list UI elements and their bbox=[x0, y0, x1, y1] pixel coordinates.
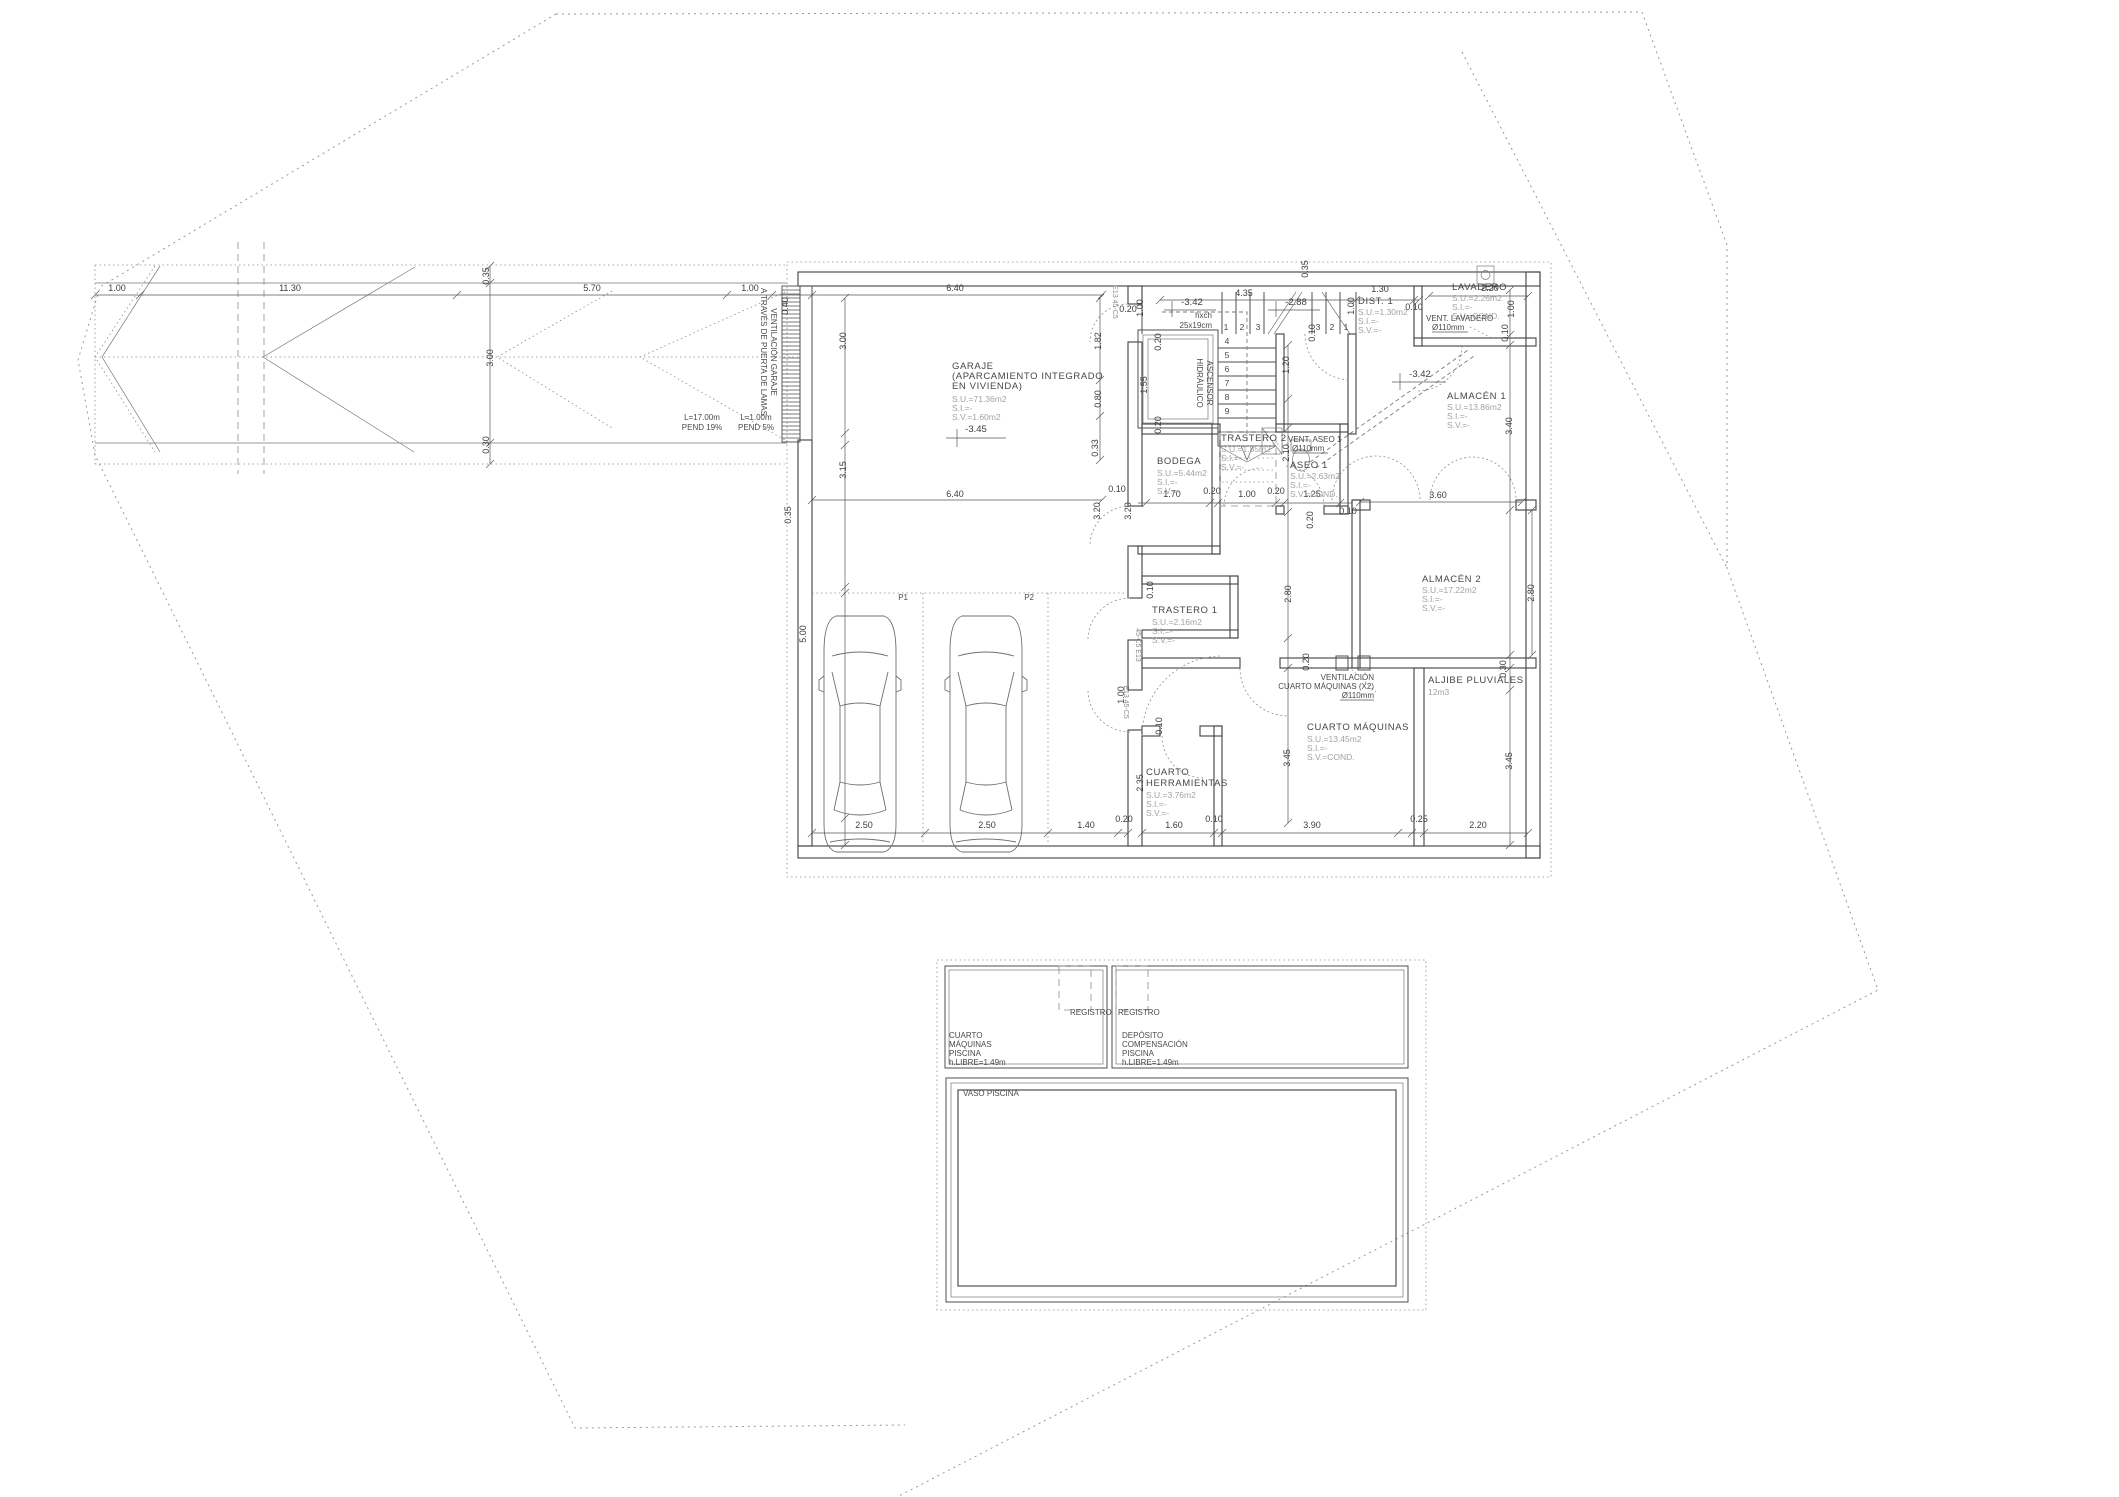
parking-label-p1: P1 bbox=[898, 593, 908, 602]
dim-label: 4.35 bbox=[1235, 288, 1253, 298]
room-label-dist-1: DIST. 1 bbox=[1358, 296, 1393, 307]
dim-label: 3.00 bbox=[838, 332, 848, 350]
step-number: 1 bbox=[1344, 322, 1349, 332]
parking-area bbox=[812, 593, 1128, 852]
room-label-aljibe-pluviales: ALJIBE PLUVIALES bbox=[1428, 675, 1524, 686]
site-boundary bbox=[78, 12, 1878, 1497]
dim-label: 1.00 bbox=[1346, 297, 1356, 315]
dim-label: 0.30 bbox=[481, 436, 491, 454]
text-label: S.V.=- bbox=[1146, 808, 1169, 818]
level-stair-mid: -2.88 bbox=[1285, 297, 1307, 308]
wall-tag: 45-C5 E13 bbox=[1134, 628, 1141, 662]
note-landing-slope: PEND 5% bbox=[738, 423, 774, 432]
dim-label: 0.33 bbox=[1090, 439, 1100, 457]
step-number: 3 bbox=[1316, 322, 1321, 332]
dim-label: 0.35 bbox=[481, 267, 491, 285]
note-stair-riser: hxch bbox=[1195, 311, 1212, 320]
dim-label: 3.90 bbox=[1303, 820, 1321, 830]
text-label: Ø110mm bbox=[1432, 323, 1465, 332]
dim-label: 0.35 bbox=[783, 506, 793, 524]
text-label: PISCINA bbox=[1122, 1049, 1155, 1058]
vaso-piscina-inner bbox=[958, 1090, 1396, 1286]
text-label: MÁQUINAS bbox=[949, 1040, 992, 1049]
car-top-view bbox=[945, 616, 1027, 852]
level-stair-landing: -3.42 bbox=[1181, 297, 1203, 308]
step-number: 3 bbox=[1256, 322, 1261, 332]
note-ventilacion-garaje: VENTILACIÓN GARAJE bbox=[769, 308, 778, 396]
text-label: h.LIBRE=1.49m bbox=[949, 1058, 1006, 1067]
note-ramp-length: L=17.00m bbox=[684, 413, 720, 422]
registro-hatch-2 bbox=[1116, 966, 1148, 1010]
note-ramp-slope: PEND 19% bbox=[682, 423, 722, 432]
dim-label: 0.20 bbox=[1203, 486, 1221, 496]
text-label: 12m3 bbox=[1428, 687, 1450, 697]
step-number: 4 bbox=[1225, 336, 1230, 346]
label-ascensor-hidraulico: ASCENSOR bbox=[1205, 361, 1214, 406]
dim-label: 1.55 bbox=[1139, 376, 1149, 394]
dim-label: 2.50 bbox=[855, 820, 873, 830]
dim-label: 11.30 bbox=[279, 283, 301, 293]
room-label-cuarto-maquinas: CUARTO MÁQUINAS bbox=[1307, 722, 1409, 733]
text-label: PISCINA bbox=[949, 1049, 982, 1058]
dim-label: 6.40 bbox=[946, 283, 964, 293]
dim-label: 1.00 bbox=[741, 283, 759, 293]
dim-label: 1.82 bbox=[1093, 332, 1103, 350]
dim-label: 1.30 bbox=[1371, 284, 1389, 294]
dim-label: 1.20 bbox=[1281, 356, 1291, 374]
dim-label: 0.10 bbox=[1339, 506, 1357, 516]
dim-label: 0.20 bbox=[1153, 333, 1163, 351]
text-label: S.V.=- bbox=[1422, 603, 1445, 613]
note-vent-aseo: VENT. ASEO 1 bbox=[1288, 435, 1342, 444]
dim-label: 0.10 bbox=[1108, 484, 1126, 494]
dim-label: 1.00 bbox=[1135, 299, 1145, 317]
dim-label: 3.15 bbox=[838, 461, 848, 479]
text-label: EN VIVIENDA) bbox=[952, 381, 1023, 392]
floor-plan-canvas: 1.0011.305.701.006.404.351.300.102.206.4… bbox=[0, 0, 2119, 1497]
text-label: S.V.=- bbox=[1152, 635, 1175, 645]
room-label-cuarto-herramientas: CUARTO bbox=[1146, 767, 1189, 778]
note-vent-lavadero: VENT. LAVADERO bbox=[1426, 314, 1493, 323]
text-label: S.V.=COND. bbox=[1290, 489, 1338, 499]
pool-structures bbox=[945, 966, 1408, 1302]
label-registro-1: REGISTRO bbox=[1070, 1008, 1112, 1017]
dim-label: 0.20 bbox=[1305, 511, 1315, 529]
access-ramp bbox=[95, 242, 798, 474]
interior-walls bbox=[1128, 286, 1536, 846]
dim-label: 1.00 bbox=[1238, 489, 1256, 499]
dim-label: 5.00 bbox=[798, 625, 808, 643]
car-top-view bbox=[819, 616, 901, 852]
dim-label: 0.80 bbox=[1093, 390, 1103, 408]
dim-label: 0.10 bbox=[1145, 581, 1155, 599]
text-label: S.V.=1.60m2 bbox=[952, 412, 1001, 422]
dim-label: 1.00 bbox=[108, 283, 126, 293]
dim-label: 0.20 bbox=[1153, 416, 1163, 434]
dim-label: 0.25 bbox=[1410, 814, 1428, 824]
step-number: 2 bbox=[1240, 322, 1245, 332]
dim-label: 0.10 bbox=[1500, 324, 1510, 342]
dim-label: 0.20 bbox=[1301, 653, 1311, 671]
dim-label: 2.20 bbox=[1469, 820, 1487, 830]
level-garaje: -3.45 bbox=[965, 424, 987, 435]
room-label-almacen-2: ALMACÉN 2 bbox=[1422, 574, 1481, 585]
dim-label: 3.00 bbox=[485, 349, 495, 367]
step-number: 7 bbox=[1225, 378, 1230, 388]
text-label: CUARTO MÁQUINAS (X2) bbox=[1278, 682, 1374, 691]
dim-label: 0.10 bbox=[1154, 717, 1164, 735]
dim-label: 3.45 bbox=[1504, 752, 1514, 770]
step-number: 2 bbox=[1330, 322, 1335, 332]
parking-label-p2: P2 bbox=[1024, 593, 1034, 602]
text-label: COMPENSACIÓN bbox=[1122, 1040, 1188, 1049]
text-label: Ø110mm bbox=[1292, 444, 1325, 453]
label-registro-2: REGISTRO bbox=[1118, 1008, 1160, 1017]
room-label-deposito-compensacion: DEPÓSITO bbox=[1122, 1031, 1163, 1040]
dim-label: 2.80 bbox=[1283, 585, 1293, 603]
text-label: HIDRÁULICO bbox=[1195, 358, 1204, 407]
room-label-lavadero: LAVADERO bbox=[1452, 282, 1507, 293]
text-label: HERRAMIENTAS bbox=[1146, 778, 1228, 789]
dim-label: 1.40 bbox=[1077, 820, 1095, 830]
dim-label: 5.70 bbox=[583, 283, 601, 293]
step-number: 9 bbox=[1225, 406, 1230, 416]
wall-tag: E13 45-C5 bbox=[1122, 685, 1129, 719]
room-label-bodega: BODEGA bbox=[1157, 456, 1201, 467]
room-label-trastero-1: TRASTERO 1 bbox=[1152, 605, 1218, 616]
deposito-compensacion-box bbox=[1112, 966, 1408, 1068]
dim-label: 0.10 bbox=[1405, 302, 1423, 312]
dim-label: 6.40 bbox=[946, 489, 964, 499]
text-label: S.V.=- bbox=[1358, 325, 1381, 335]
text-label: S.V.=- bbox=[1157, 486, 1180, 496]
dim-label: 0.35 bbox=[1300, 260, 1310, 278]
dim-label: 3.20 bbox=[1092, 502, 1102, 520]
note-vent-cuarto-maquinas: VENTILACIÓN bbox=[1321, 673, 1375, 682]
dim-label: 3.45 bbox=[1282, 749, 1292, 767]
dim-label: 3.40 bbox=[1504, 417, 1514, 435]
dim-label: 0.10 bbox=[1205, 814, 1223, 824]
wall-tag: E13 45-C5 bbox=[1111, 285, 1118, 319]
step-number: 5 bbox=[1225, 350, 1230, 360]
plan-labels: 1.0011.305.701.006.404.351.300.102.206.4… bbox=[108, 260, 1536, 1098]
level-dist: -3.42 bbox=[1409, 369, 1431, 380]
dim-label: 2.50 bbox=[978, 820, 996, 830]
plan-sheet: 1.0011.305.701.006.404.351.300.102.206.4… bbox=[0, 0, 2119, 1497]
step-number: 1 bbox=[1224, 322, 1229, 332]
room-label-almacen-1: ALMACÉN 1 bbox=[1447, 391, 1506, 402]
room-label-trastero-2: TRASTERO 2 bbox=[1221, 433, 1287, 444]
dim-label: 3.60 bbox=[1429, 490, 1447, 500]
dim-label: 3.20 bbox=[1123, 502, 1133, 520]
room-label-cuarto-maquinas-piscina: CUARTO bbox=[949, 1031, 983, 1040]
text-label: S.V.=- bbox=[1221, 462, 1244, 472]
room-label-vaso-piscina: VASO PISCINA bbox=[963, 1089, 1020, 1098]
room-label-aseo-1: ASEO 1 bbox=[1290, 460, 1328, 471]
dim-label: 1.60 bbox=[1165, 820, 1183, 830]
dim-label: 0.40 bbox=[780, 297, 790, 315]
step-number: 6 bbox=[1225, 364, 1230, 374]
text-label: S.V.=- bbox=[1447, 420, 1470, 430]
text-label: h.LIBRE=1.49m bbox=[1122, 1058, 1179, 1067]
dim-label: 2.80 bbox=[1526, 584, 1536, 602]
text-label: 25x19cm bbox=[1180, 321, 1213, 330]
text-label: S.V.=COND. bbox=[1307, 752, 1355, 762]
dim-label: 0.20 bbox=[1267, 486, 1285, 496]
step-number: 8 bbox=[1225, 392, 1230, 402]
dim-label: 1.00 bbox=[1506, 300, 1516, 318]
dim-label: 0.20 bbox=[1115, 814, 1133, 824]
text-label: A TRAVÉS DE PUERTA DE LAMAS bbox=[759, 288, 768, 416]
registro-hatch-1 bbox=[1059, 966, 1091, 1010]
dim-label: 2.35 bbox=[1135, 774, 1145, 792]
door-swings bbox=[1088, 304, 1516, 778]
text-label: Ø110mm bbox=[1342, 691, 1375, 700]
